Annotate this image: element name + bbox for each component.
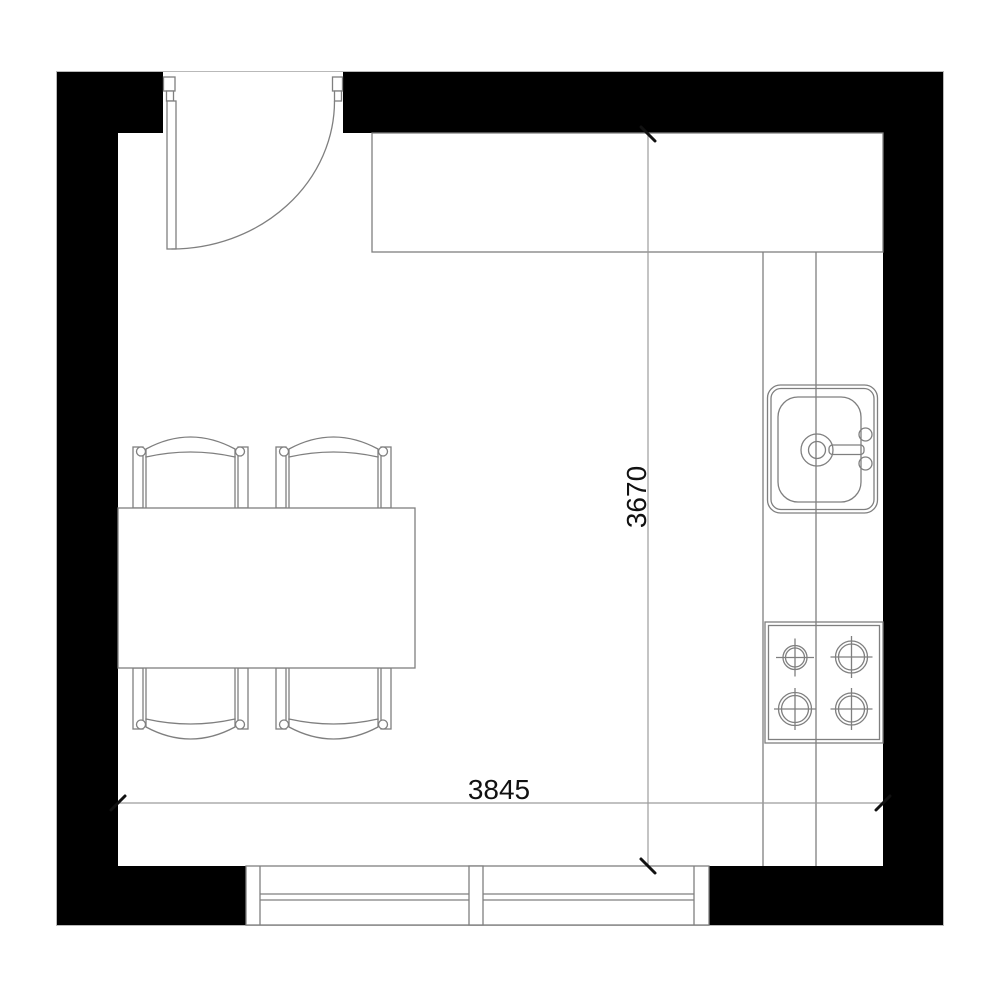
door-jamb-left [164, 77, 176, 91]
burner-top-right [831, 636, 873, 678]
chair-bottom-left [133, 668, 248, 739]
chair-post-left [137, 447, 146, 456]
chair-backrest [289, 719, 378, 739]
sink-drain-outer [801, 434, 833, 466]
burner-top-left [776, 639, 814, 677]
wall-top-right-segment [343, 72, 943, 133]
chair-post-left [280, 447, 289, 456]
chair-post-left [137, 720, 146, 729]
chair-backrest [146, 719, 235, 739]
sink-drain-inner [809, 442, 826, 459]
chair-top-left [133, 437, 248, 508]
wall-bottom-left-segment [57, 866, 246, 925]
kitchen-counter-top [372, 133, 883, 252]
chair-post-right [236, 720, 245, 729]
burner-crosshair [831, 636, 873, 678]
door-jamb-left-stop [167, 91, 174, 101]
burner-bottom-right [831, 688, 873, 730]
dimension-label-horizontal: 3845 [468, 774, 530, 805]
floor-plan-drawing: 3670 3845 [0, 0, 1000, 1000]
wall-right [883, 72, 943, 925]
cooktop-outer-edge [765, 622, 883, 743]
kitchen-sink [768, 385, 878, 513]
chair-post-right [236, 447, 245, 456]
chair-backrest [146, 437, 235, 457]
dining-set [118, 437, 415, 739]
door-jamb-right [333, 77, 343, 91]
window [246, 866, 709, 925]
burner-crosshair [774, 688, 816, 730]
dimension-horizontal: 3845 [111, 774, 890, 810]
dining-table [118, 508, 415, 668]
burner-crosshair [776, 639, 814, 677]
chair-post-right [379, 447, 388, 456]
sink-faucet-spout [829, 445, 864, 455]
chair-seat-sides [146, 668, 235, 720]
wall-bottom-right-segment [709, 866, 943, 925]
door-leaf [167, 101, 176, 249]
burner-crosshair [831, 688, 873, 730]
wall-left [57, 72, 118, 925]
window-mullion [469, 866, 483, 925]
chair-post-left [280, 720, 289, 729]
chair-top-right [276, 437, 391, 508]
chair-backrest [289, 437, 378, 457]
burner-bottom-left [774, 688, 816, 730]
sink-basin [778, 397, 861, 502]
entry-door [164, 77, 343, 249]
door-swing-arc [172, 101, 335, 249]
door-jamb-right-stop [335, 91, 342, 101]
chair-seat-sides [289, 456, 378, 508]
floor-plan-canvas: 3670 3845 [0, 0, 1000, 1000]
chair-post-right [379, 720, 388, 729]
chair-bottom-right [276, 668, 391, 739]
wall-top-left-segment [57, 72, 163, 133]
chair-seat-sides [289, 668, 378, 720]
chair-seat-sides [146, 456, 235, 508]
stove-cooktop [765, 622, 883, 743]
dimension-label-vertical: 3670 [621, 466, 652, 528]
